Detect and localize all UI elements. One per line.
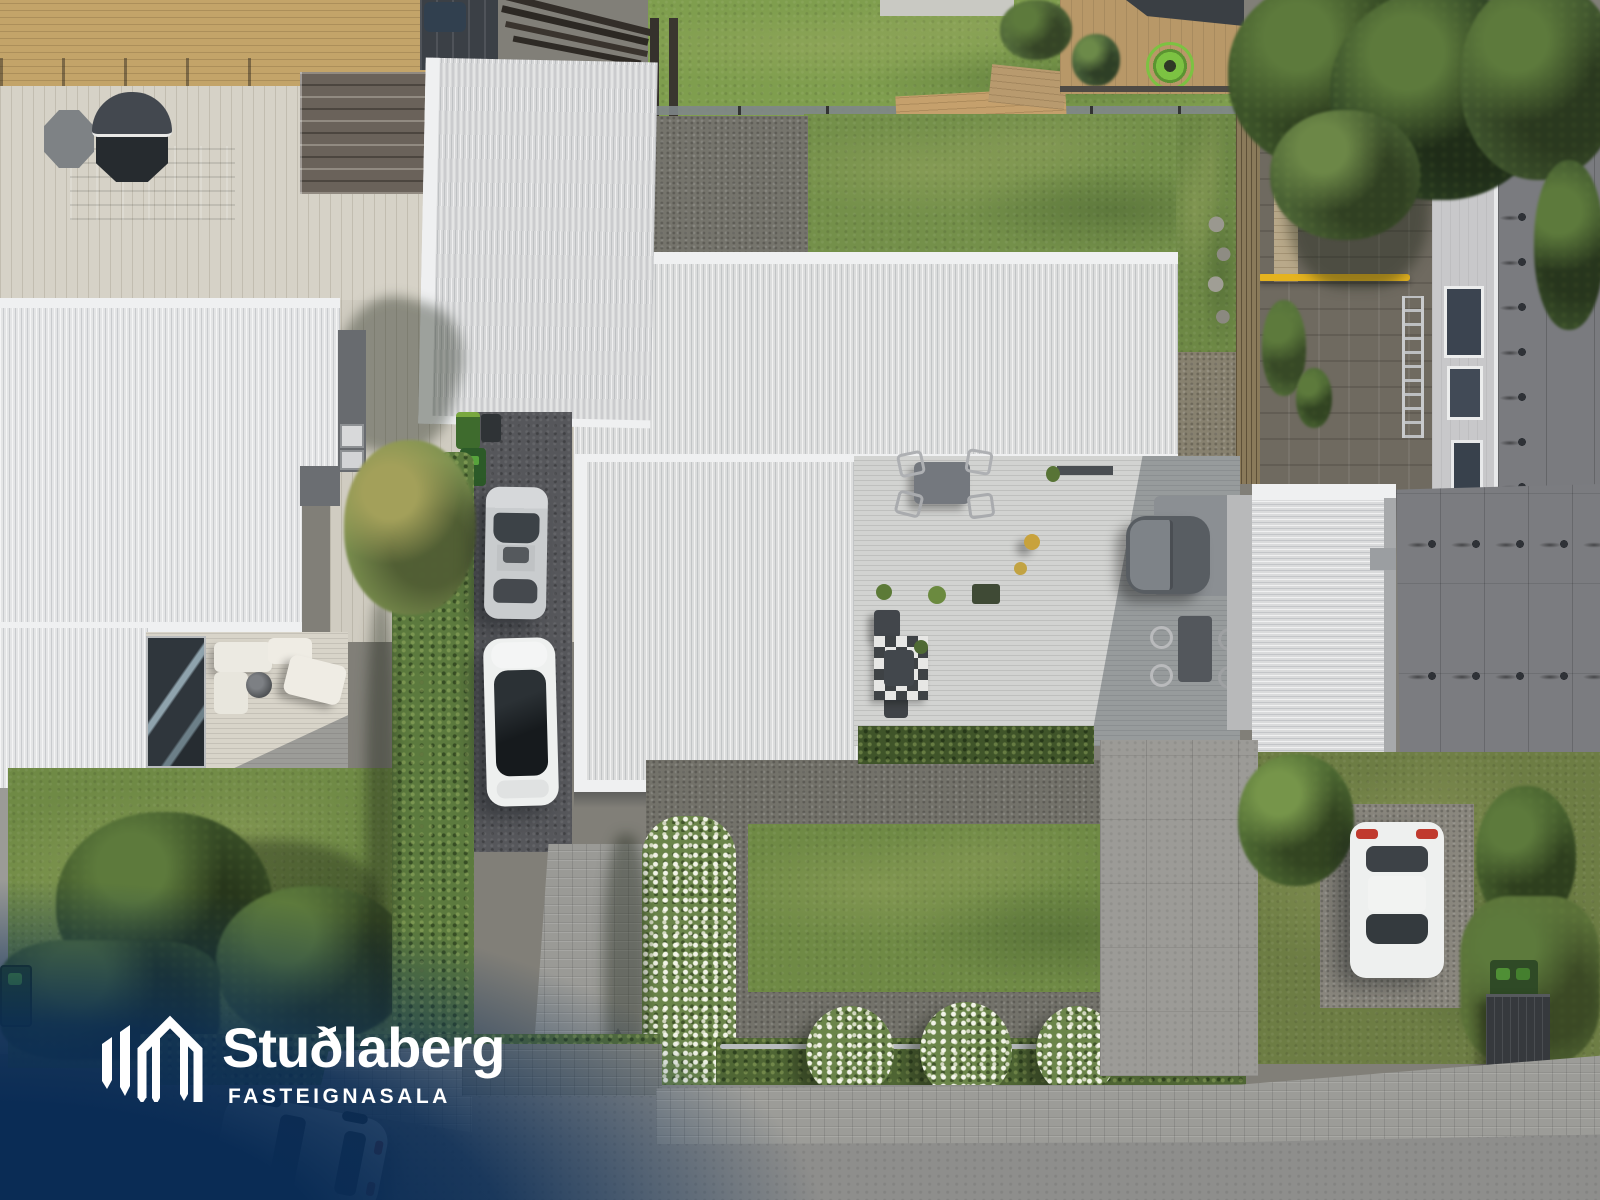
facade-window-1 xyxy=(1444,286,1484,358)
rocks-by-fence xyxy=(1202,208,1238,344)
car-glass-canopy xyxy=(494,669,549,776)
ladder xyxy=(1402,296,1424,438)
parked-car-white-glassroof xyxy=(483,637,559,807)
green-bin xyxy=(456,412,480,449)
rug-plant xyxy=(914,640,928,654)
small-plant xyxy=(1046,466,1060,482)
wall-window-1 xyxy=(340,424,364,448)
potted-plant-green-2 xyxy=(928,586,946,604)
roof-ridge-top xyxy=(574,252,1178,264)
concrete-pad-top xyxy=(880,0,1014,16)
hot-tub-neighbour xyxy=(92,92,172,182)
roof-step-junction xyxy=(300,466,340,506)
deck-hedge-south xyxy=(858,726,1094,764)
car-rear-glass xyxy=(493,579,537,604)
car-sunroof xyxy=(503,547,529,563)
deck-chair-round xyxy=(1150,626,1173,649)
green-bin-right xyxy=(1490,960,1538,998)
car-hood xyxy=(491,641,548,668)
left-house-roof-lower xyxy=(0,628,148,790)
wooden-fence-right xyxy=(1236,86,1260,484)
dark-bin xyxy=(481,414,501,442)
patio-chair xyxy=(964,448,994,476)
outdoor-sofa xyxy=(214,642,272,672)
parked-car-white-right xyxy=(1350,822,1444,978)
weeds-on-path-2 xyxy=(1296,368,1332,428)
membrane-roof-lower xyxy=(1396,484,1600,764)
lumber-pile-dark xyxy=(494,2,669,66)
hose-reel xyxy=(1146,42,1194,90)
main-roof-left-wing xyxy=(574,462,872,792)
brand-name: Stuðlaberg xyxy=(222,1020,504,1076)
outdoor-sofa-corner xyxy=(214,672,248,714)
big-bush-right-1 xyxy=(1238,754,1354,886)
lumber-pile-light-2 xyxy=(988,64,1068,110)
roof-vent-box xyxy=(1370,548,1396,570)
roof-ridge xyxy=(0,298,340,308)
car-trunk xyxy=(497,779,549,798)
parked-car-silver xyxy=(484,486,548,619)
car-taillight-left xyxy=(1356,829,1378,839)
facade-window-2 xyxy=(1447,366,1483,420)
bin-lid-dot xyxy=(1516,968,1530,980)
right-wing-roof xyxy=(1252,484,1396,796)
tree-canopy-4 xyxy=(1270,110,1420,240)
small-tree-top xyxy=(1000,0,1072,60)
left-house-roof-mid xyxy=(0,472,302,632)
tree-canopy-lobe xyxy=(1534,160,1600,330)
hot-tub-cover-dark xyxy=(424,2,466,32)
parapet-top xyxy=(1252,484,1396,500)
bin-lid-dot xyxy=(1496,968,1510,980)
storage-shed-dark xyxy=(1486,994,1550,1069)
gravel-top-mid xyxy=(648,116,808,260)
potted-plant-green xyxy=(876,584,892,600)
car-roof xyxy=(1368,876,1426,912)
round-coffee-table xyxy=(246,672,272,698)
hot-tub-main xyxy=(1126,516,1210,594)
patio-chair xyxy=(966,492,995,519)
left-house-roof-upper xyxy=(0,298,340,474)
roof-ridge-left xyxy=(574,462,586,792)
aerial-photo: Stuðlaberg FASTEIGNASALA xyxy=(0,0,1600,1200)
concrete-driveway-right xyxy=(1100,740,1258,1076)
plank xyxy=(496,0,653,36)
car-windshield xyxy=(1366,914,1428,944)
deck-dining-table-2 xyxy=(1178,616,1212,682)
rug-side-table xyxy=(884,650,914,686)
deck-cube-seat xyxy=(874,610,900,638)
planter-greenery xyxy=(1072,34,1120,86)
deck-threshold-strip xyxy=(1057,466,1113,475)
brand-tagline: FASTEIGNASALA xyxy=(228,1086,451,1107)
deck-east-wall xyxy=(1227,495,1253,730)
main-roof-top-wing xyxy=(574,252,1178,462)
weathered-annex-roof xyxy=(300,72,426,194)
window-glass-reflection xyxy=(146,636,206,768)
deck-rail-bottom xyxy=(1060,86,1244,92)
yellow-pot-2 xyxy=(1014,562,1027,575)
yellow-pot xyxy=(1024,534,1040,550)
hot-tub-cover-folded xyxy=(1130,520,1173,590)
car-windshield xyxy=(493,513,540,544)
tree-over-patio xyxy=(344,440,476,615)
car-taillight-right xyxy=(1416,829,1438,839)
hot-tub-canopy xyxy=(92,92,172,137)
basalt-columns-logo-icon xyxy=(98,1014,210,1102)
watermark: Stuðlaberg FASTEIGNASALA xyxy=(0,990,760,1120)
deck-chair-round xyxy=(1150,664,1173,687)
planter-box xyxy=(972,584,1000,604)
car-rear-glass xyxy=(1366,846,1428,872)
octagon-platform xyxy=(44,110,94,168)
